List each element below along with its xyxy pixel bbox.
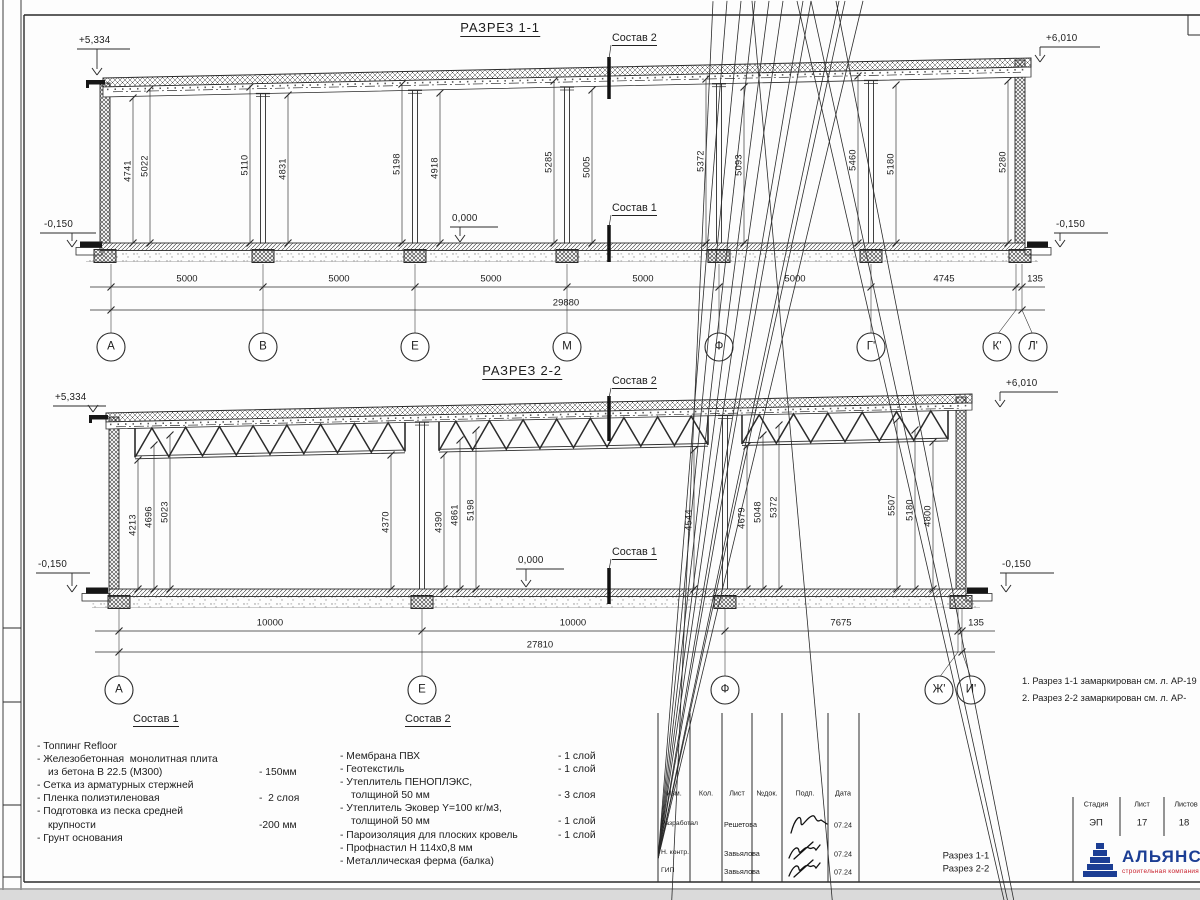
- composition-line: крупности-200 мм: [37, 820, 337, 833]
- bay-dim-label: 135: [968, 618, 984, 628]
- composition-line-text: - Грунт основания: [37, 833, 123, 844]
- vertical-dim-label: 5285: [544, 151, 553, 173]
- composition-line: толщиной 50 мм- 3 слоя: [340, 790, 640, 803]
- composition-line: - Пленка полиэтиленовая- 2 слоя: [37, 793, 337, 806]
- axis-bubble-label: В: [259, 341, 267, 353]
- elevation-label: 0,000: [452, 214, 478, 224]
- stage-value: ЭП: [1089, 818, 1103, 828]
- bay-dim-label: 5000: [328, 274, 349, 284]
- composition-list: - Мембрана ПВХ- 1 слой- Геотекстиль- 1 с…: [340, 751, 640, 869]
- axis-bubble-label: Е: [411, 341, 419, 353]
- vertical-dim-label: 5180: [886, 153, 895, 175]
- axis-bubble-label: Г': [867, 341, 875, 353]
- bay-dim-label: 5000: [176, 274, 197, 284]
- composition-title: Состав 1: [133, 714, 179, 727]
- elevation-label: +6,010: [1006, 379, 1037, 389]
- axis-bubble-label: М: [562, 341, 572, 353]
- composition-line-value: - 1 слой: [558, 751, 596, 762]
- sheets-label: Листов: [1174, 800, 1197, 807]
- axis-bubble-label: А: [107, 341, 115, 353]
- title-block-role: Н. контр.: [661, 850, 689, 857]
- composition-title: Состав 2: [405, 714, 451, 727]
- composition-line: - Грунт основания: [37, 833, 337, 846]
- composition-line: - Утеплитель ПЕНОПЛЭКС,: [340, 777, 640, 790]
- elevation-label: -0,150: [44, 220, 73, 230]
- vertical-dim-label: 5198: [392, 153, 401, 175]
- composition-callout-label: Состав 2: [612, 376, 657, 389]
- sheet-label: Лист: [1134, 800, 1150, 807]
- title-block-date: 07.24: [834, 850, 852, 857]
- composition-line-text: - Утеплитель ПЕНОПЛЭКС,: [340, 777, 472, 788]
- composition-line: - Геотекстиль- 1 слой: [340, 764, 640, 777]
- sheets-value: 18: [1179, 818, 1190, 828]
- axis-bubble-label: Ф: [721, 684, 730, 696]
- composition-line: - Металлическая ферма (балка): [340, 856, 640, 869]
- architectural-drawing-sheet: РАЗРЕЗ 1-1+5,334+6,010-0,150-0,1500,000С…: [0, 0, 1200, 900]
- composition-line: - Мембрана ПВХ- 1 слой: [340, 751, 640, 764]
- axis-bubble-label: Ж': [933, 684, 946, 696]
- axis-bubble-label: А: [115, 684, 123, 696]
- composition-line-text: крупности: [48, 820, 96, 831]
- elevation-label: -0,150: [1056, 220, 1085, 230]
- composition-line: - Подготовка из песка средней: [37, 806, 337, 819]
- vertical-dim-label: 4918: [430, 157, 439, 179]
- note-line: 1. Разрез 1-1 замаркирован см. л. АР-19: [1022, 677, 1197, 686]
- company-logo-subtitle: строительная компания: [1122, 869, 1199, 875]
- bay-dim-label: 5000: [784, 274, 805, 284]
- axis-bubble-label: И': [966, 684, 976, 696]
- vertical-dim-label: 4679: [737, 507, 746, 529]
- composition-line-value: - 150мм: [259, 767, 297, 778]
- bay-dim-label: 7675: [830, 618, 851, 628]
- composition-line-text: - Металлическая ферма (балка): [340, 856, 494, 867]
- bay-dim-label: 5000: [480, 274, 501, 284]
- composition-line: - Сетка из арматурных стержней: [37, 780, 337, 793]
- composition-callout-label: Состав 1: [612, 203, 657, 216]
- vertical-dim-label: 5180: [905, 499, 914, 521]
- vertical-dim-label: 5093: [734, 154, 743, 176]
- vertical-dim-label: 4544: [684, 509, 693, 531]
- composition-line: из бетона В 22.5 (М300)- 150мм: [37, 767, 337, 780]
- axis-bubble-label: Е: [418, 684, 426, 696]
- title-block-header: Лист: [729, 789, 745, 796]
- total-dim-label: 29880: [553, 298, 579, 308]
- composition-line-text: - Сетка из арматурных стержней: [37, 780, 193, 791]
- title-block-header: Изм.: [666, 789, 681, 796]
- composition-line: - Пароизоляция для плоских кровель- 1 сл…: [340, 830, 640, 843]
- composition-line-text: из бетона В 22.5 (М300): [48, 767, 162, 778]
- elevation-label: -0,150: [38, 560, 67, 570]
- axis-bubble-label: К': [993, 341, 1002, 353]
- sheet-value: 17: [1137, 818, 1148, 828]
- composition-line-text: - Подготовка из песка средней: [37, 806, 183, 817]
- composition-line-text: - Пароизоляция для плоских кровель: [340, 830, 518, 841]
- section-title: РАЗРЕЗ 1-1: [460, 21, 540, 37]
- vertical-dim-label: 5372: [769, 496, 778, 518]
- vertical-dim-label: 5048: [753, 501, 762, 523]
- composition-line-text: толщиной 50 мм: [351, 816, 430, 827]
- title-block-header: Подп.: [795, 789, 814, 796]
- vertical-dim-label: 5005: [582, 156, 591, 178]
- composition-line-text: - Профнастил Н 114х0,8 мм: [340, 843, 473, 854]
- bay-dim-label: 10000: [560, 618, 586, 628]
- composition-line-text: - Пленка полиэтиленовая: [37, 793, 160, 804]
- elevation-label: -0,150: [1002, 560, 1031, 570]
- composition-line-value: -200 мм: [259, 820, 297, 831]
- bay-dim-label: 5000: [632, 274, 653, 284]
- vertical-dim-label: 5280: [998, 151, 1007, 173]
- stage-label: Стадия: [1084, 800, 1109, 807]
- elevation-label: +5,334: [79, 36, 110, 46]
- doc-title-line: Разрез 2-2: [943, 864, 990, 874]
- elevation-label: +5,334: [55, 393, 86, 403]
- composition-line: - Профнастил Н 114х0,8 мм: [340, 843, 640, 856]
- vertical-dim-label: 5022: [140, 155, 149, 177]
- composition-line-value: - 1 слой: [558, 830, 596, 841]
- composition-list: - Топпинг Refloor- Железобетонная моноли…: [37, 741, 337, 846]
- bay-dim-label: 4745: [933, 274, 954, 284]
- vertical-dim-label: 5460: [848, 149, 857, 171]
- composition-line-text: - Топпинг Refloor: [37, 741, 117, 752]
- title-block-name: Завьялова: [724, 850, 760, 857]
- composition-line-text: толщиной 50 мм: [351, 790, 430, 801]
- composition-line-text: - Мембрана ПВХ: [340, 751, 420, 762]
- vertical-dim-label: 4390: [434, 511, 443, 533]
- composition-callout-label: Состав 2: [612, 33, 657, 46]
- composition-line-text: - Геотекстиль: [340, 764, 404, 775]
- vertical-dim-label: 4370: [381, 511, 390, 533]
- composition-line-text: - Железобетонная монолитная плита: [37, 754, 218, 765]
- composition-callout-label: Состав 1: [612, 547, 657, 560]
- vertical-dim-label: 5023: [160, 501, 169, 523]
- title-block-name: Завьялова: [724, 868, 760, 875]
- composition-line-value: - 1 слой: [558, 764, 596, 775]
- title-block-header: Кол.: [699, 789, 713, 796]
- section-title: РАЗРЕЗ 2-2: [482, 364, 562, 380]
- composition-line: - Утеплитель Эковер Y=100 кг/м3,: [340, 803, 640, 816]
- composition-line-value: - 2 слоя: [259, 793, 299, 804]
- title-block-header: №док.: [756, 789, 777, 796]
- title-block-role: Разработал: [661, 821, 698, 828]
- composition-line-value: - 1 слой: [558, 816, 596, 827]
- section-2-2-linework: [36, 388, 1058, 704]
- elevation-label: +6,010: [1046, 34, 1077, 44]
- title-block-name: Решетова: [724, 821, 757, 828]
- composition-line: - Топпинг Refloor: [37, 741, 337, 754]
- bay-dim-label: 135: [1027, 274, 1043, 284]
- vertical-dim-label: 4213: [128, 514, 137, 536]
- composition-line: - Железобетонная монолитная плита: [37, 754, 337, 767]
- vertical-dim-label: 5372: [696, 150, 705, 172]
- composition-line-text: - Утеплитель Эковер Y=100 кг/м3,: [340, 803, 502, 814]
- axis-bubble-label: Ф: [715, 341, 724, 353]
- composition-line-value: - 3 слоя: [558, 790, 595, 801]
- note-line: 2. Разрез 2-2 замаркирован см. л. АР-: [1022, 694, 1186, 703]
- total-dim-label: 27810: [527, 640, 553, 650]
- vertical-dim-label: 5507: [887, 494, 896, 516]
- title-block-role: ГИП: [661, 868, 674, 875]
- vertical-dim-label: 5110: [240, 155, 249, 176]
- axis-bubble-label: Л': [1028, 341, 1038, 353]
- vertical-dim-label: 4831: [278, 158, 287, 180]
- vertical-dim-label: 4800: [923, 505, 932, 527]
- title-block-date: 07.24: [834, 868, 852, 875]
- vertical-dim-label: 5198: [466, 499, 475, 521]
- composition-line: толщиной 50 мм- 1 слой: [340, 816, 640, 829]
- title-block-header: Дата: [835, 789, 851, 796]
- vertical-dim-label: 4861: [450, 504, 459, 526]
- doc-title-line: Разрез 1-1: [943, 851, 990, 861]
- company-logo-name: АЛЬЯНС: [1122, 848, 1200, 865]
- section-1-1-linework: [40, 45, 1108, 361]
- title-block-date: 07.24: [834, 821, 852, 828]
- bay-dim-label: 10000: [257, 618, 283, 628]
- vertical-dim-label: 4696: [144, 506, 153, 528]
- vertical-dim-label: 4741: [123, 160, 132, 182]
- elevation-label: 0,000: [518, 556, 544, 566]
